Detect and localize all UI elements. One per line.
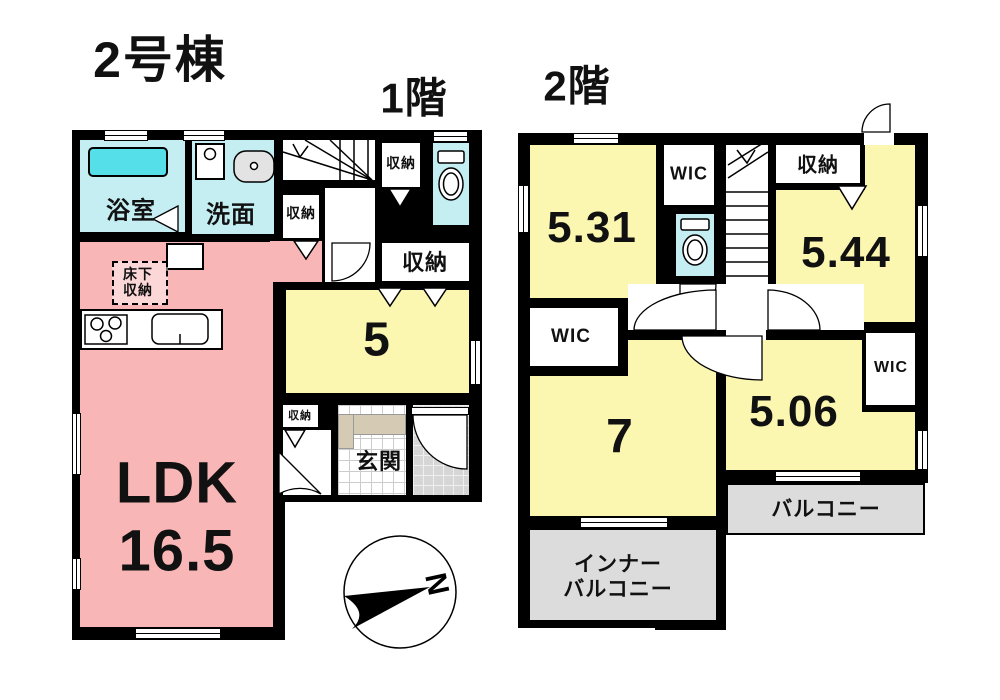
stairs-2f-icon: [726, 140, 768, 276]
closet-top-right-label: 収納: [386, 153, 416, 173]
room506-label: 5.06: [749, 387, 839, 437]
bath-door-icon: [153, 206, 178, 232]
balcony-label: バルコニー: [771, 493, 881, 523]
stairs-1f-icon: [283, 140, 372, 180]
wic-left-label: WIC: [551, 326, 591, 348]
closet-right-label: 収納: [402, 245, 448, 277]
wic-top-label: WIC: [670, 164, 708, 185]
plan-linework: N: [0, 0, 1000, 700]
bath-label: 浴室: [106, 191, 156, 226]
closet-below-stairs-label: 収納: [286, 203, 316, 223]
closet-bottom-label: 収納: [288, 407, 312, 423]
closet-2f-top-label: 収納: [797, 149, 839, 178]
genkan-label: 玄関: [356, 444, 402, 476]
underfloor-label-2: 収納: [123, 280, 153, 300]
inner-balcony-label-2: バルコニー: [563, 573, 673, 603]
floor-plan-page: 2号棟 1階 2階: [0, 0, 1000, 700]
room7-label: 7: [606, 410, 634, 465]
floor1-label: 1階: [380, 65, 447, 126]
room531-label: 5.31: [547, 203, 637, 253]
compass: N: [344, 536, 456, 648]
kitchen-sink-icon: [152, 314, 208, 344]
stove-icon: [85, 315, 127, 344]
washroom-label: 洗面: [206, 195, 256, 230]
room544-label: 5.44: [801, 228, 891, 278]
wic-right-label: WIC: [874, 359, 908, 377]
toilet-icon-2f: [681, 219, 709, 265]
page-title: 2号棟: [93, 20, 227, 92]
washbasin-icon: [234, 151, 274, 182]
room5-label: 5: [363, 313, 391, 368]
ldk-label: LDK: [116, 450, 238, 517]
floor2-label: 2階: [543, 53, 610, 114]
toilet-icon-1f: [438, 151, 464, 200]
washer-icon: [205, 149, 216, 160]
ldk-area-label: 16.5: [119, 518, 236, 585]
